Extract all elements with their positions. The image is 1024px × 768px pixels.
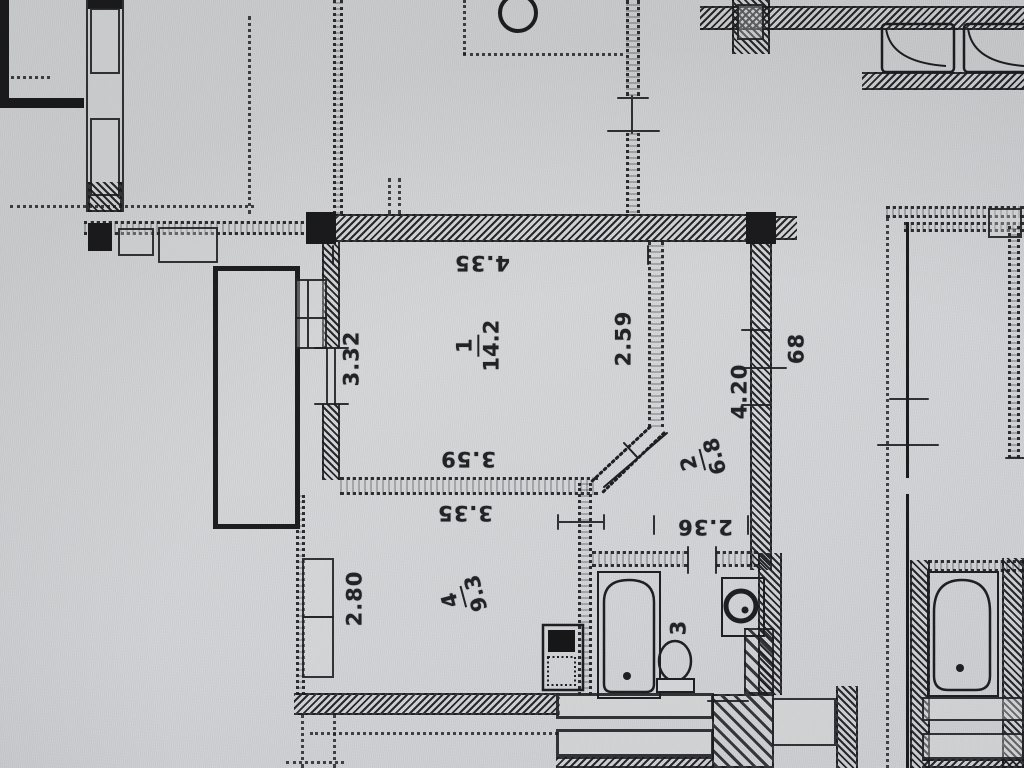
room4-window bbox=[302, 558, 334, 618]
dim-hall-right-label: 4.20 bbox=[730, 352, 751, 432]
neighbor-window bbox=[90, 118, 120, 196]
neighbor-bath-wall bbox=[910, 560, 930, 768]
door-leaf bbox=[604, 433, 667, 487]
neighbor-wall bbox=[906, 222, 909, 478]
bath-top-wall bbox=[716, 551, 758, 567]
neighbor-bath-wall bbox=[928, 560, 1024, 572]
dim-duct-label: 68 bbox=[787, 319, 808, 379]
balcony-door bbox=[326, 348, 336, 404]
landing-step bbox=[556, 729, 714, 757]
room4-label: 4 9.3 bbox=[432, 563, 494, 630]
upper-door-mark bbox=[608, 96, 659, 133]
room4-window bbox=[302, 616, 334, 678]
dim-room1-bottom-label: 3.59 bbox=[423, 448, 513, 469]
stair-box bbox=[772, 698, 836, 746]
dim-room1-top-label: 4.35 bbox=[437, 252, 527, 273]
room1-left-wall bbox=[322, 404, 340, 480]
room1-number: 1 bbox=[453, 334, 479, 357]
dim-tick bbox=[736, 330, 786, 405]
stair-shaft bbox=[744, 628, 774, 694]
dashed-wall bbox=[301, 714, 304, 768]
room4-number: 4 bbox=[436, 585, 467, 613]
landing-step bbox=[922, 697, 1024, 721]
linework-overlay bbox=[0, 0, 1024, 768]
dashed-wall bbox=[0, 76, 50, 79]
door-opening-mark bbox=[558, 515, 604, 529]
room1-area: 14.2 bbox=[479, 320, 503, 372]
balcony bbox=[213, 266, 300, 529]
dim-room1-right-label: 2.59 bbox=[614, 299, 635, 379]
apartment-right-wall bbox=[750, 242, 772, 570]
dashed-wall bbox=[333, 714, 336, 768]
neighbor-wall bbox=[922, 759, 1024, 768]
wall-stub bbox=[88, 0, 122, 9]
toilet-icon bbox=[657, 641, 694, 692]
wall-pier bbox=[88, 182, 122, 212]
neighbor-window bbox=[118, 228, 154, 256]
dashed-wall bbox=[10, 205, 254, 208]
neighbor-bath-wall bbox=[1002, 558, 1024, 768]
room1-room4-wall bbox=[340, 477, 598, 495]
neighbor-window bbox=[90, 8, 120, 74]
neighbor-window-column bbox=[86, 0, 124, 212]
door-jamb bbox=[688, 547, 716, 573]
dim-bath-width-label: 2.36 bbox=[660, 516, 750, 537]
landing-step bbox=[922, 733, 1024, 759]
neighbor-wall bbox=[904, 222, 1024, 232]
dim-tick bbox=[315, 348, 348, 404]
room1-left-wall bbox=[322, 242, 340, 348]
dimension-extension bbox=[398, 178, 401, 214]
dimension-extension bbox=[388, 178, 391, 214]
bath-top-wall bbox=[592, 551, 688, 567]
wall-corner-block bbox=[306, 212, 336, 244]
wall-stub bbox=[775, 216, 797, 240]
wall-pier bbox=[732, 0, 770, 54]
room3-number: 3 bbox=[669, 616, 690, 640]
floorplan-photo: 4.35 3.32 2.59 3.59 3.35 2.80 4.20 2.36 … bbox=[0, 0, 1024, 768]
dashed-wall bbox=[310, 732, 558, 735]
upper-room-wall bbox=[463, 53, 623, 56]
room4-hall-wall bbox=[578, 483, 592, 695]
neighbor-wall bbox=[886, 218, 889, 768]
bathtub-icon bbox=[598, 572, 660, 698]
sink-icon bbox=[722, 578, 764, 636]
dim-room4-left-label: 2.80 bbox=[345, 559, 366, 639]
wall-pier bbox=[88, 223, 112, 251]
bath-right-wall bbox=[758, 553, 782, 695]
diagonal-wall bbox=[590, 427, 667, 493]
dim-tick bbox=[654, 516, 748, 534]
room1-label: 1 14.2 bbox=[453, 318, 502, 374]
neighbor-wall bbox=[886, 206, 1024, 218]
upper-room-wall bbox=[463, 0, 466, 55]
room2-area: 6.8 bbox=[698, 435, 730, 477]
neighbor-wall bbox=[862, 72, 1024, 90]
stair-shaft bbox=[712, 694, 774, 768]
landing-wall bbox=[556, 757, 714, 768]
upper-apartment-wall bbox=[626, 0, 640, 96]
wall-corner-block bbox=[746, 212, 776, 244]
neighbor-bathtub-icon bbox=[928, 572, 998, 696]
room2-number: 2 bbox=[675, 448, 706, 476]
stair-wall bbox=[836, 686, 858, 768]
room4-left-wall bbox=[296, 495, 305, 695]
wall-pier bbox=[988, 208, 1022, 238]
neighbor-wall bbox=[700, 6, 1024, 30]
room2-label: 2 6.8 bbox=[671, 426, 733, 493]
neighbor-balcony-wall bbox=[0, 0, 84, 108]
neighbor-bathtub-icon bbox=[882, 24, 1024, 72]
apartment-top-wall bbox=[308, 214, 775, 242]
dim-room4-top-label: 3.35 bbox=[420, 502, 510, 523]
dim-tick bbox=[333, 246, 648, 264]
stove-icon bbox=[543, 625, 583, 690]
upper-apartment-wall bbox=[333, 0, 343, 214]
apartment-bottom-wall bbox=[294, 693, 560, 715]
dim-room1-left-label: 3.32 bbox=[342, 319, 363, 399]
landing-step bbox=[556, 693, 714, 719]
neighbor-wall bbox=[906, 494, 909, 768]
neighbor-wall bbox=[1008, 226, 1020, 458]
shaft-box bbox=[737, 4, 764, 40]
neighbor-facade-wall bbox=[84, 221, 310, 235]
room1-window bbox=[295, 279, 327, 349]
dim-tick bbox=[878, 399, 1024, 458]
neighbor-sink-icon bbox=[500, 0, 536, 31]
upper-apartment-wall bbox=[626, 133, 640, 213]
door-leaf-tick bbox=[624, 443, 637, 457]
dashed-wall bbox=[248, 16, 251, 214]
neighbor-window bbox=[158, 227, 218, 263]
room4-area: 9.3 bbox=[459, 572, 491, 614]
dashed-wall bbox=[286, 761, 344, 764]
room1-hall-wall bbox=[648, 242, 664, 427]
